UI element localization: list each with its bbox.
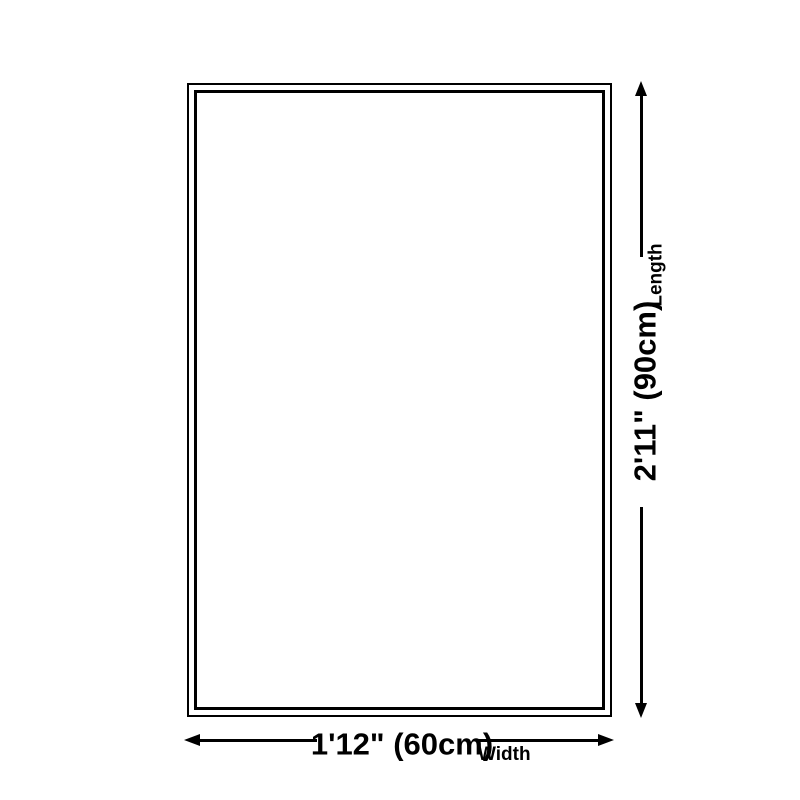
width-dimension-line-right bbox=[478, 739, 598, 742]
rug-outline-inner-border bbox=[194, 90, 605, 710]
rug-size-diagram: Length 2'11" (90cm) 1'12" (60cm) Width bbox=[0, 0, 800, 800]
arrow-right-icon bbox=[598, 734, 614, 746]
arrow-down-icon bbox=[635, 703, 647, 718]
length-dimension-line-upper bbox=[640, 94, 643, 257]
width-axis-label: Width bbox=[478, 745, 531, 764]
length-dimension-line-lower bbox=[640, 507, 643, 704]
rug-outline-outer-border bbox=[187, 83, 612, 717]
arrow-left-icon bbox=[184, 734, 200, 746]
width-dimension-value: 1'12" (60cm) bbox=[311, 729, 493, 760]
length-dimension-value: 2'11" (90cm) bbox=[630, 301, 661, 482]
width-dimension-line-left bbox=[200, 739, 317, 742]
length-axis-label: Length bbox=[647, 243, 666, 306]
